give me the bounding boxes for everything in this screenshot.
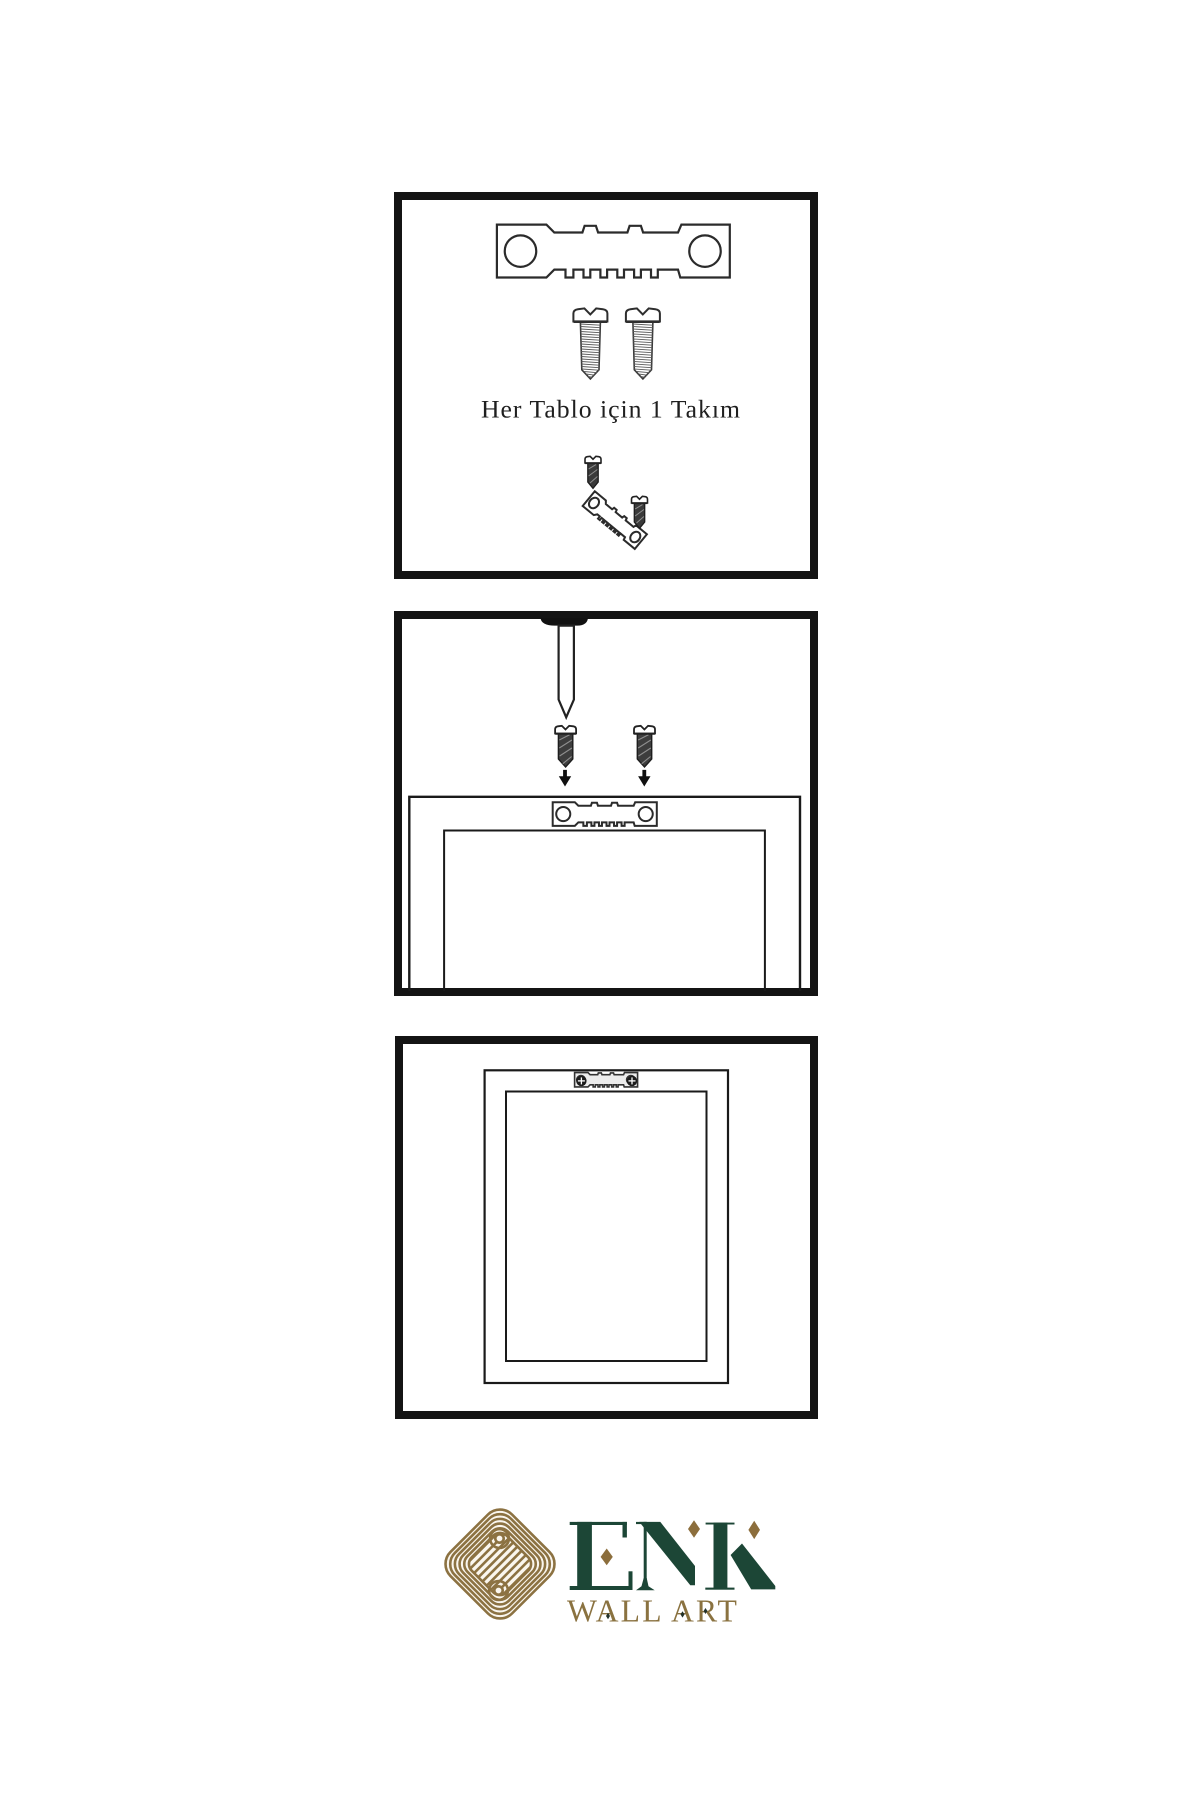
svg-text:Her Tablo için 1 Takım: Her Tablo için 1 Takım	[481, 395, 741, 424]
svg-text:WALL ART: WALL ART	[567, 1594, 739, 1629]
